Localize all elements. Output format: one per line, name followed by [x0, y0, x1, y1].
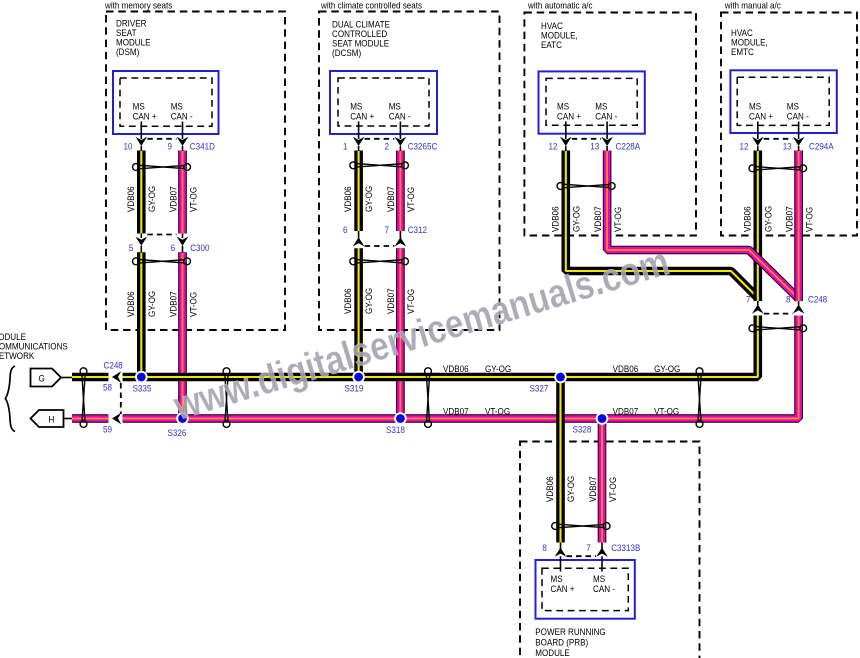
svg-text:6: 6 — [171, 243, 176, 254]
svg-text:S326: S326 — [168, 428, 187, 439]
svg-text:VT-OG: VT-OG — [188, 292, 199, 317]
svg-text:GY-OG: GY-OG — [763, 206, 774, 232]
svg-text:GY-OG: GY-OG — [147, 186, 158, 212]
svg-text:(DCSM): (DCSM) — [332, 48, 361, 59]
svg-text:GY-OG: GY-OG — [566, 476, 577, 502]
svg-text:59: 59 — [103, 425, 112, 436]
svg-text:EMTC: EMTC — [731, 47, 754, 58]
svg-text:12: 12 — [740, 141, 749, 152]
svg-text:S335: S335 — [133, 384, 152, 395]
svg-text:GY-OG: GY-OG — [364, 288, 375, 314]
svg-text:VDB07: VDB07 — [168, 291, 179, 317]
svg-text:C248: C248 — [104, 361, 123, 372]
svg-text:VDB07: VDB07 — [593, 206, 604, 232]
svg-text:GY-OG: GY-OG — [364, 186, 375, 212]
svg-text:S327: S327 — [530, 384, 549, 395]
svg-text:VT-OG: VT-OG — [608, 477, 619, 502]
svg-text:NETWORK: NETWORK — [0, 351, 35, 362]
svg-text:S318: S318 — [386, 425, 405, 436]
svg-text:2: 2 — [385, 141, 390, 152]
svg-text:10: 10 — [124, 141, 133, 152]
svg-text:VDB07: VDB07 — [443, 406, 469, 417]
svg-text:VDB06: VDB06 — [742, 206, 753, 232]
svg-text:GY-OG: GY-OG — [485, 364, 511, 375]
svg-text:6: 6 — [343, 225, 348, 236]
svg-text:C3313B: C3313B — [611, 543, 640, 554]
svg-text:CAN +: CAN + — [551, 584, 575, 595]
svg-text:12: 12 — [549, 141, 558, 152]
svg-text:VDB07: VDB07 — [168, 186, 179, 212]
svg-text:CAN +: CAN + — [133, 112, 157, 123]
svg-text:5: 5 — [129, 243, 134, 254]
svg-text:1: 1 — [343, 141, 348, 152]
svg-text:VT-OG: VT-OG — [613, 207, 624, 232]
svg-text:GY-OG: GY-OG — [147, 291, 158, 317]
svg-text:8: 8 — [542, 543, 547, 554]
svg-text:CAN -: CAN - — [593, 584, 615, 595]
svg-text:GY-OG: GY-OG — [654, 364, 680, 375]
svg-text:VT-OG: VT-OG — [804, 207, 815, 232]
svg-text:H: H — [49, 415, 55, 426]
svg-text:CAN -: CAN - — [787, 112, 809, 123]
svg-text:VDB07: VDB07 — [613, 406, 639, 417]
svg-text:VDB06: VDB06 — [443, 364, 469, 375]
svg-text:C312: C312 — [408, 225, 427, 236]
svg-text:C300: C300 — [190, 243, 209, 254]
svg-text:C294A: C294A — [809, 141, 834, 152]
svg-text:VT-OG: VT-OG — [406, 187, 417, 212]
svg-text:GY-OG: GY-OG — [571, 206, 582, 232]
svg-text:9: 9 — [168, 141, 173, 152]
svg-text:VDB07: VDB07 — [386, 288, 397, 314]
svg-text:7: 7 — [746, 295, 751, 306]
svg-text:C228A: C228A — [616, 141, 641, 152]
svg-text:VDB06: VDB06 — [343, 186, 354, 212]
svg-text:VDB06: VDB06 — [613, 364, 639, 375]
svg-text:CAN +: CAN + — [749, 112, 773, 123]
svg-text:CAN -: CAN - — [595, 112, 617, 123]
svg-text:C3265C: C3265C — [408, 141, 438, 152]
svg-text:VDB06: VDB06 — [545, 476, 556, 502]
svg-text:with manual a/c: with manual a/c — [724, 1, 781, 12]
svg-text:VDB06: VDB06 — [343, 288, 354, 314]
svg-text:7: 7 — [586, 543, 591, 554]
svg-text:POWER RUNNING: POWER RUNNING — [535, 627, 605, 638]
svg-text:58: 58 — [103, 383, 112, 394]
svg-text:CAN -: CAN - — [389, 112, 411, 123]
svg-text:C341D: C341D — [190, 141, 215, 152]
svg-text:VDB07: VDB07 — [588, 476, 599, 502]
svg-text:CAN -: CAN - — [171, 112, 193, 123]
svg-text:VDB07: VDB07 — [784, 206, 795, 232]
svg-text:VDB07: VDB07 — [386, 186, 397, 212]
svg-text:VT-OG: VT-OG — [406, 289, 417, 314]
svg-text:G: G — [39, 374, 45, 385]
svg-text:8: 8 — [786, 295, 791, 306]
svg-text:13: 13 — [590, 141, 599, 152]
svg-text:EATC: EATC — [541, 40, 562, 51]
svg-text:VDB06: VDB06 — [126, 186, 137, 212]
svg-text:S319: S319 — [345, 384, 364, 395]
svg-text:with memory seats: with memory seats — [104, 1, 172, 12]
svg-text:VT-OG: VT-OG — [654, 406, 679, 417]
svg-text:(DSM): (DSM) — [116, 47, 139, 58]
svg-text:VT-OG: VT-OG — [485, 406, 510, 417]
svg-text:VDB06: VDB06 — [550, 206, 561, 232]
svg-text:CAN +: CAN + — [557, 112, 581, 123]
svg-text:VDB06: VDB06 — [126, 291, 137, 317]
svg-text:S328: S328 — [573, 425, 592, 436]
svg-text:13: 13 — [783, 141, 792, 152]
svg-text:CAN +: CAN + — [350, 112, 374, 123]
svg-text:BOARD (PRB): BOARD (PRB) — [535, 638, 588, 649]
svg-text:MODULE: MODULE — [535, 648, 570, 658]
svg-text:with climate controlled seats: with climate controlled seats — [320, 1, 422, 12]
svg-text:7: 7 — [385, 225, 390, 236]
svg-text:C248: C248 — [808, 295, 827, 306]
svg-text:with automatic a/c: with automatic a/c — [527, 1, 593, 12]
svg-text:VT-OG: VT-OG — [188, 187, 199, 212]
